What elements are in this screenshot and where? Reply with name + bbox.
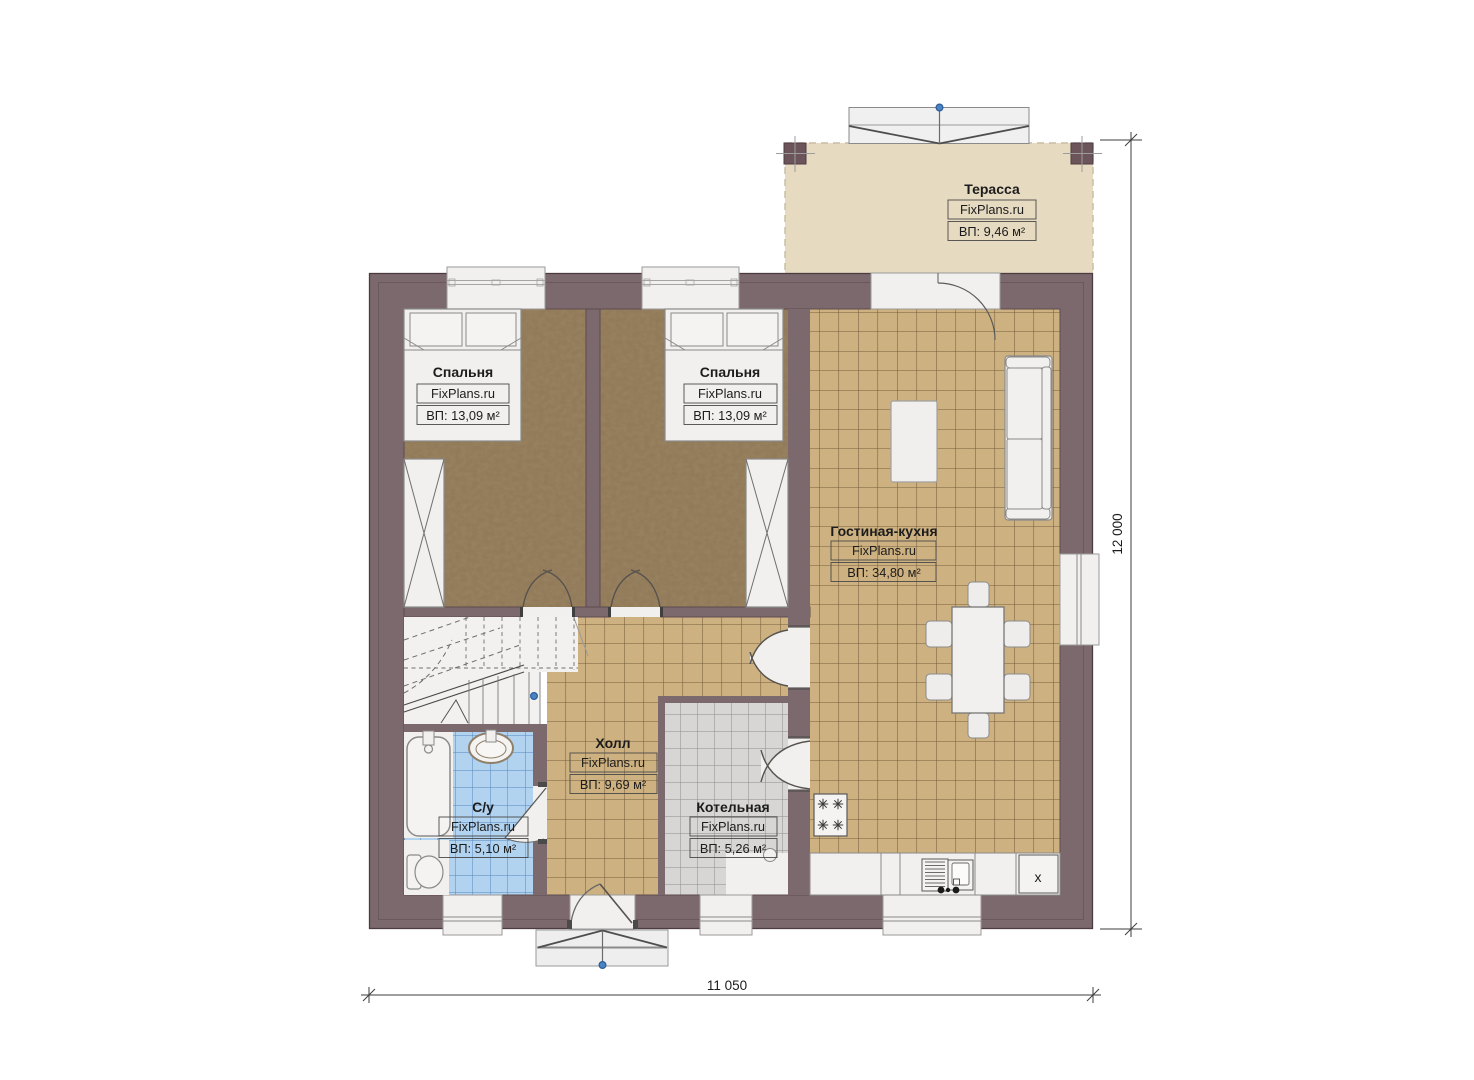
- svg-text:FixPlans.ru: FixPlans.ru: [698, 386, 762, 401]
- svg-text:Гостиная-кухня: Гостиная-кухня: [830, 523, 937, 539]
- svg-text:ВП: 9,69 м²: ВП: 9,69 м²: [580, 777, 647, 792]
- svg-text:Котельная: Котельная: [696, 799, 769, 815]
- svg-text:x: x: [1035, 869, 1042, 885]
- svg-text:С/у: С/у: [472, 799, 494, 815]
- svg-text:12 000: 12 000: [1110, 513, 1125, 554]
- svg-text:FixPlans.ru: FixPlans.ru: [852, 543, 916, 558]
- svg-text:FixPlans.ru: FixPlans.ru: [701, 819, 765, 834]
- svg-text:ВП: 13,09 м²: ВП: 13,09 м²: [426, 408, 500, 423]
- svg-text:FixPlans.ru: FixPlans.ru: [431, 386, 495, 401]
- svg-text:ВП: 34,80 м²: ВП: 34,80 м²: [847, 565, 921, 580]
- svg-text:Спальня: Спальня: [700, 364, 760, 380]
- svg-text:ВП: 5,10 м²: ВП: 5,10 м²: [450, 841, 517, 856]
- svg-text:Спальня: Спальня: [433, 364, 493, 380]
- svg-text:FixPlans.ru: FixPlans.ru: [581, 755, 645, 770]
- svg-text:Холл: Холл: [595, 735, 630, 751]
- svg-text:Терасса: Терасса: [964, 181, 1020, 197]
- svg-text:11 050: 11 050: [707, 978, 747, 993]
- svg-text:ВП: 5,26 м²: ВП: 5,26 м²: [700, 841, 767, 856]
- svg-text:ВП: 13,09 м²: ВП: 13,09 м²: [693, 408, 767, 423]
- svg-text:ВП: 9,46 м²: ВП: 9,46 м²: [959, 224, 1026, 239]
- svg-text:FixPlans.ru: FixPlans.ru: [451, 819, 515, 834]
- svg-text:FixPlans.ru: FixPlans.ru: [960, 202, 1024, 217]
